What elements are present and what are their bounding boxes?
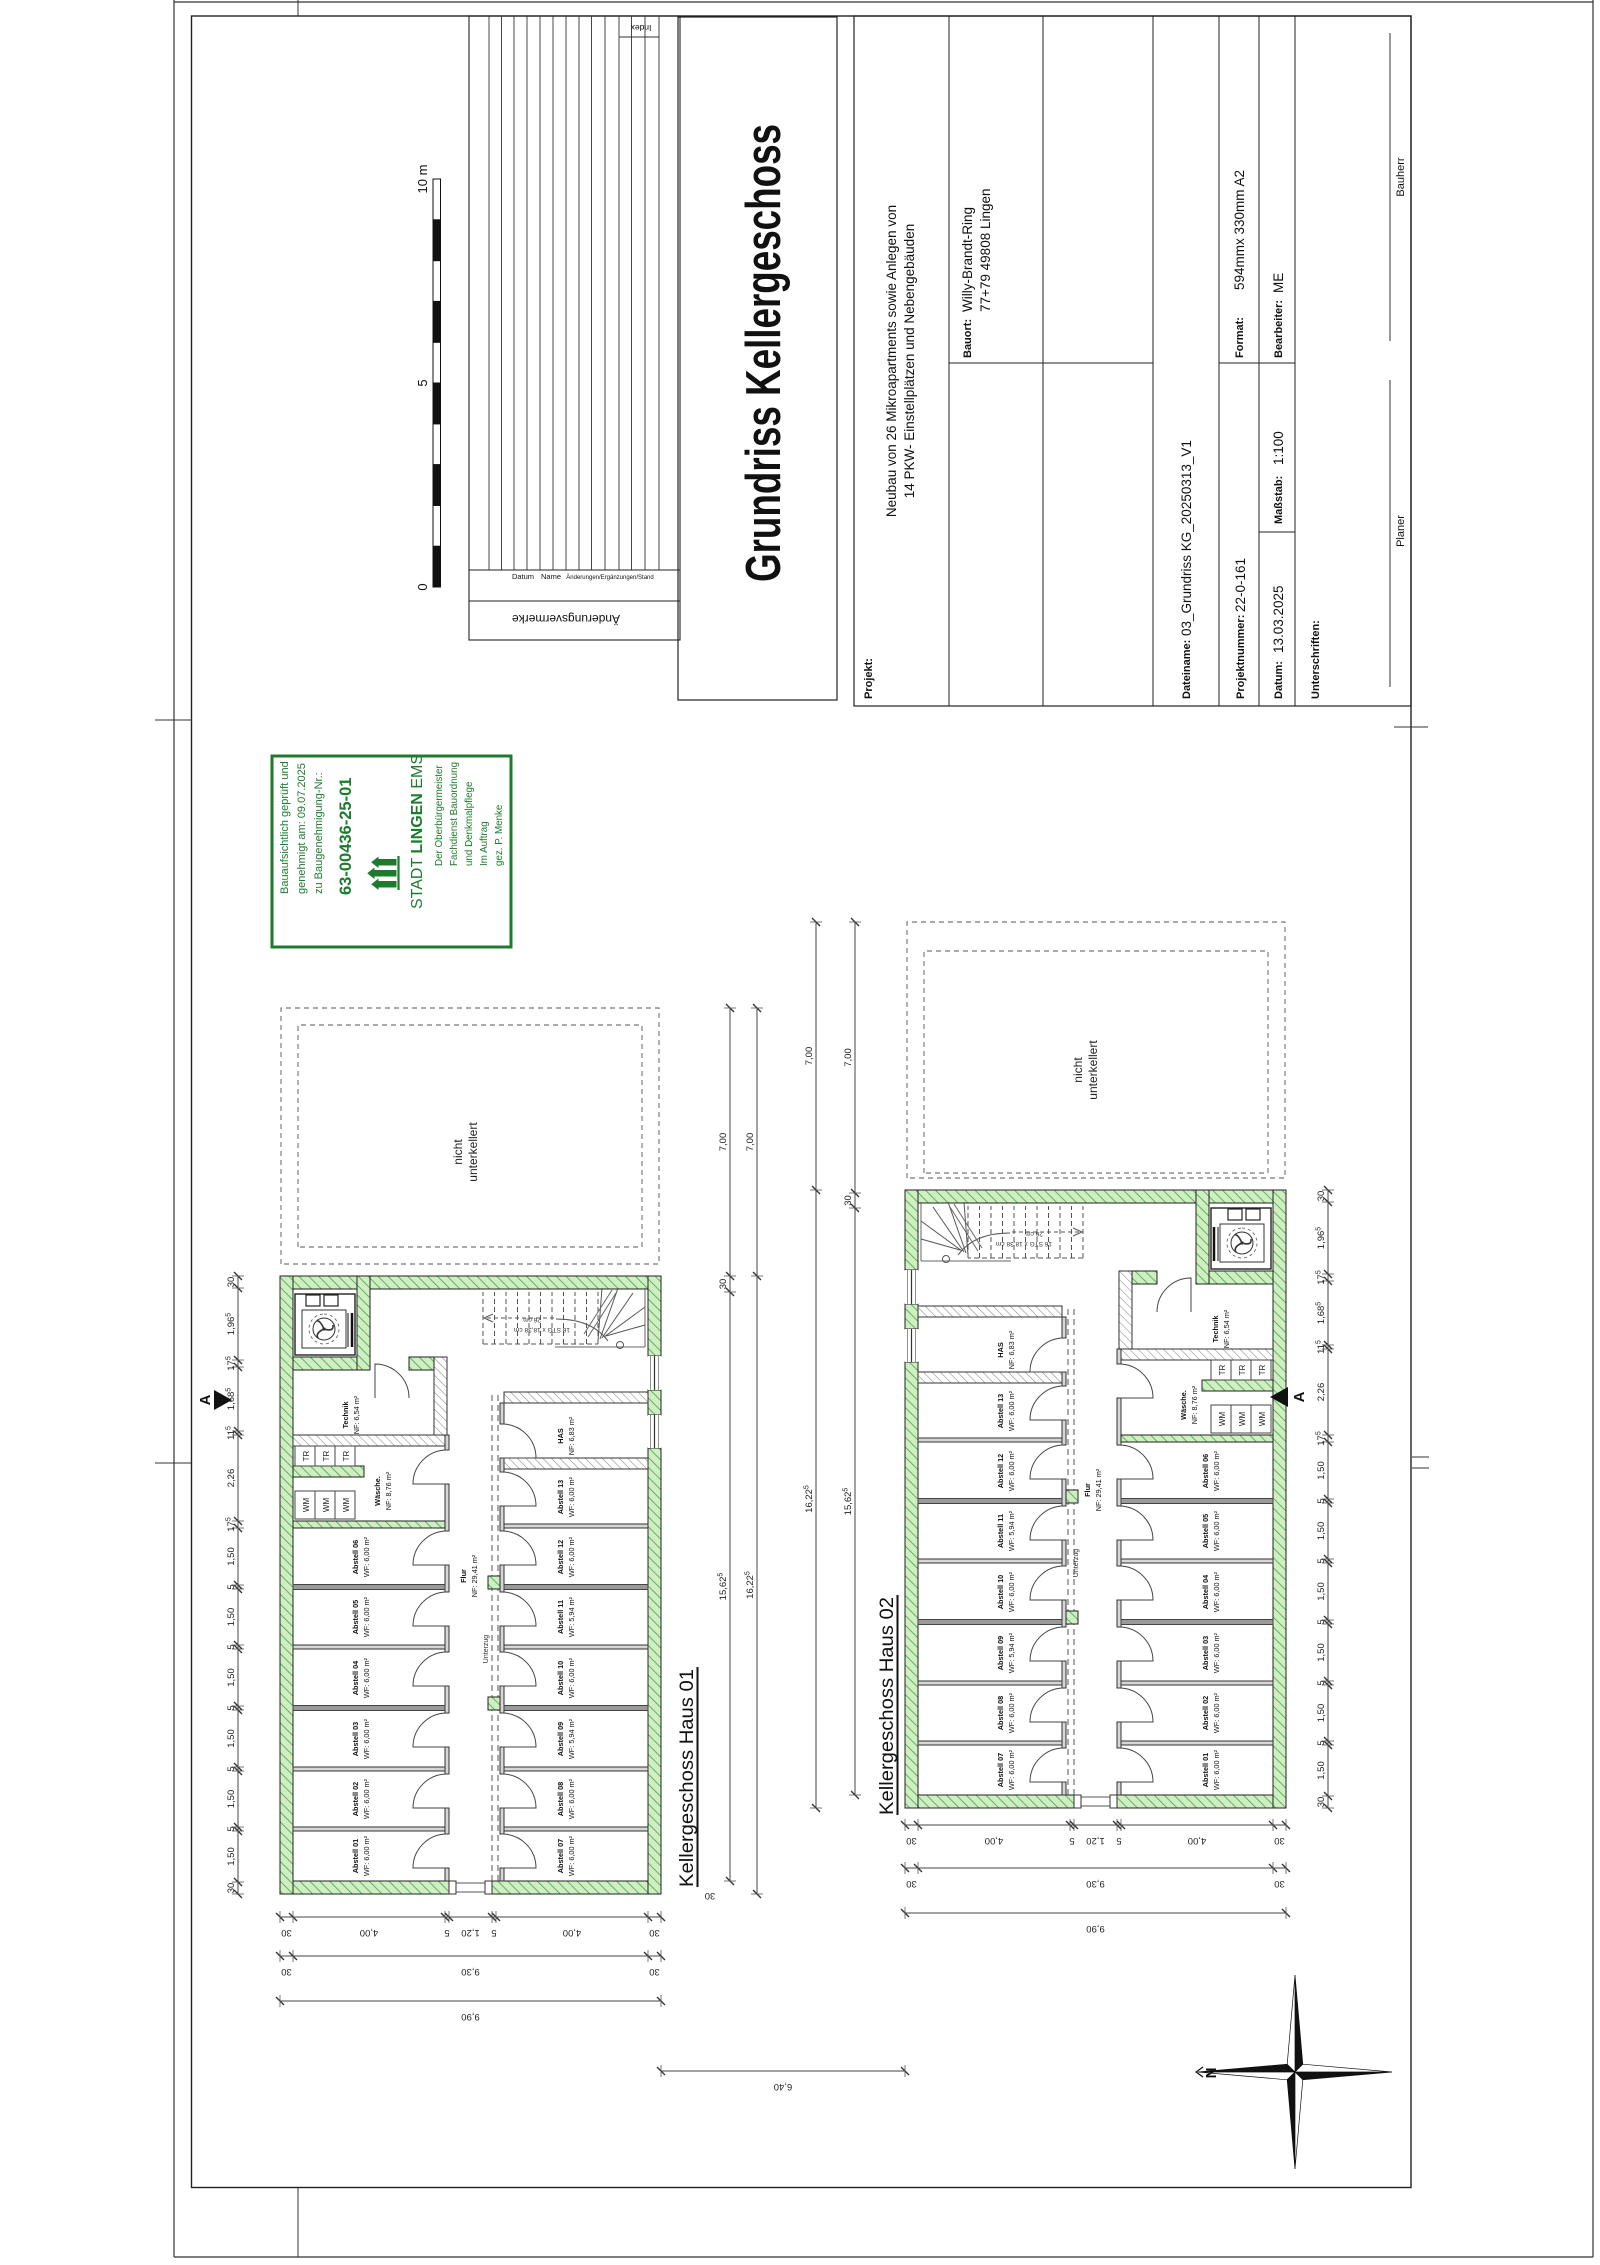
svg-text:13.03.2025: 13.03.2025 (1271, 585, 1286, 653)
svg-text:30: 30 (718, 1279, 729, 1290)
svg-text:WF: 6,00 m²: WF: 6,00 m² (1212, 1632, 1221, 1673)
svg-text:Abstell 07: Abstell 07 (556, 1839, 565, 1873)
svg-text:1,50: 1,50 (226, 1547, 237, 1566)
svg-text:16,225: 16,225 (804, 1485, 816, 1513)
svg-text:15,625: 15,625 (843, 1488, 855, 1516)
svg-text:Projekt:: Projekt: (863, 658, 875, 699)
svg-text:1,50: 1,50 (1316, 1461, 1327, 1480)
svg-text:5: 5 (1316, 1558, 1327, 1563)
svg-text:30: 30 (281, 1927, 292, 1938)
svg-text:WF: 6,00 m²: WF: 6,00 m² (362, 1657, 371, 1698)
svg-text:nicht: nicht (451, 1139, 465, 1165)
svg-text:16 STG x 18,38 cm: 16 STG x 18,38 cm (996, 1240, 1052, 1247)
svg-text:Datum:: Datum: (1273, 661, 1285, 699)
svg-text:Kellergeschoss Haus 02: Kellergeschoss Haus 02 (876, 1597, 898, 1815)
svg-text:TR: TR (1218, 1364, 1227, 1375)
svg-text:NF: 6,83 m²: NF: 6,83 m² (567, 1416, 576, 1455)
svg-text:HAS: HAS (556, 1428, 565, 1444)
svg-text:14 PKW- Einstellplätzen und Ne: 14 PKW- Einstellplätzen und Nebengebäude… (902, 224, 917, 498)
svg-text:Abstell 06: Abstell 06 (1201, 1454, 1210, 1488)
svg-text:TR: TR (1258, 1364, 1267, 1375)
svg-text:WF: 6,00 m²: WF: 6,00 m² (362, 1778, 371, 1819)
svg-text:zu Baugenehmigung-Nr.:: zu Baugenehmigung-Nr.: (313, 772, 325, 894)
svg-text:5: 5 (226, 1766, 237, 1771)
svg-text:4,00: 4,00 (360, 1927, 379, 1938)
svg-text:Flur: Flur (459, 1569, 468, 1583)
svg-text:4,00: 4,00 (1188, 1835, 1207, 1846)
svg-text:Abstell 09: Abstell 09 (556, 1722, 565, 1756)
svg-text:N: N (1203, 2068, 1220, 2079)
svg-text:30: 30 (226, 1277, 237, 1288)
svg-text:1,50: 1,50 (1316, 1582, 1327, 1601)
svg-text:Format:: Format: (1234, 317, 1246, 358)
svg-text:1,50: 1,50 (226, 1847, 237, 1866)
svg-text:15,625: 15,625 (718, 1573, 730, 1601)
svg-text:5: 5 (226, 1705, 237, 1710)
svg-text:und Denkmalpflege: und Denkmalpflege (464, 781, 475, 866)
svg-text:5: 5 (1069, 1835, 1074, 1846)
svg-text:Index: Index (630, 23, 652, 33)
svg-text:WF: 5,94 m²: WF: 5,94 m² (567, 1596, 576, 1637)
svg-text:1,685: 1,685 (1316, 1302, 1328, 1325)
svg-text:Unterschriften:: Unterschriften: (1310, 620, 1322, 699)
svg-text:03_Grundriss KG_20250313_V1: 03_Grundriss KG_20250313_V1 (1179, 440, 1194, 636)
svg-text:5: 5 (491, 1927, 496, 1938)
svg-text:1,20: 1,20 (461, 1927, 480, 1938)
svg-text:TR: TR (322, 1450, 331, 1461)
svg-text:WM: WM (342, 1498, 351, 1513)
svg-text:22-0-161: 22-0-161 (1233, 558, 1248, 612)
svg-text:1,50: 1,50 (226, 1608, 237, 1627)
svg-text:Abstell 05: Abstell 05 (1201, 1514, 1210, 1548)
svg-text:WM: WM (1238, 1412, 1247, 1427)
svg-text:30: 30 (649, 1966, 660, 1977)
svg-text:16,225: 16,225 (745, 1571, 757, 1599)
svg-text:Willy-Brandt-Ring: Willy-Brandt-Ring (960, 207, 975, 312)
svg-text:5: 5 (1316, 1498, 1327, 1503)
svg-text:26 cm: 26 cm (1025, 1230, 1043, 1237)
svg-text:Maßstab:: Maßstab: (1273, 476, 1285, 524)
svg-text:5: 5 (226, 1644, 237, 1649)
svg-text:Abstell 03: Abstell 03 (1201, 1636, 1210, 1670)
svg-text:10 m: 10 m (415, 165, 430, 194)
svg-text:Planer: Planer (1395, 515, 1407, 547)
svg-text:30: 30 (843, 1195, 854, 1206)
svg-text:Unterzug: Unterzug (483, 1635, 490, 1664)
svg-text:1,50: 1,50 (1316, 1704, 1327, 1723)
svg-text:WF: 6,00 m²: WF: 6,00 m² (1212, 1510, 1221, 1551)
svg-text:594mmx 330mm A2: 594mmx 330mm A2 (1232, 170, 1247, 290)
svg-text:30: 30 (649, 1927, 660, 1938)
svg-text:Abstell 10: Abstell 10 (556, 1661, 565, 1695)
svg-text:WF: 6,00 m²: WF: 6,00 m² (1212, 1749, 1221, 1790)
svg-text:unterkellert: unterkellert (1086, 1040, 1100, 1100)
svg-text:1:100: 1:100 (1271, 431, 1286, 465)
svg-text:Abstell 05: Abstell 05 (351, 1600, 360, 1634)
svg-text:Technik: Technik (341, 1401, 350, 1429)
svg-text:Abstell 08: Abstell 08 (556, 1782, 565, 1816)
svg-text:Abstell 02: Abstell 02 (351, 1782, 360, 1816)
svg-text:Datum: Datum (512, 572, 534, 581)
svg-text:Abstell 04: Abstell 04 (351, 1660, 360, 1695)
svg-text:1,50: 1,50 (1316, 1643, 1327, 1662)
svg-text:STADT LINGEN EMS: STADT LINGEN EMS (409, 754, 426, 909)
svg-text:30: 30 (1274, 1878, 1285, 1889)
svg-text:30: 30 (226, 1883, 237, 1894)
svg-text:A: A (1291, 1391, 1308, 1402)
svg-text:Abstell 09: Abstell 09 (996, 1636, 1005, 1670)
svg-text:WF: 6,00 m²: WF: 6,00 m² (567, 1536, 576, 1577)
svg-text:NF: 6,54 m²: NF: 6,54 m² (1222, 1309, 1231, 1348)
svg-text:1,965: 1,965 (1316, 1227, 1328, 1250)
svg-text:30: 30 (906, 1835, 917, 1846)
svg-text:7,00: 7,00 (718, 1133, 729, 1152)
svg-text:1,50: 1,50 (226, 1668, 237, 1687)
svg-text:1,50: 1,50 (226, 1790, 237, 1809)
svg-text:WF: 6,00 m²: WF: 6,00 m² (1007, 1571, 1016, 1612)
svg-text:1,50: 1,50 (226, 1729, 237, 1748)
svg-text:WF: 6,00 m²: WF: 6,00 m² (567, 1835, 576, 1876)
svg-text:Dateiname:: Dateiname: (1181, 640, 1193, 699)
svg-text:WF: 5,94 m²: WF: 5,94 m² (567, 1718, 576, 1759)
svg-text:30: 30 (705, 1890, 716, 1901)
svg-text:9,30: 9,30 (1086, 1878, 1105, 1889)
svg-text:NF: 8,76 m²: NF: 8,76 m² (384, 1471, 393, 1510)
svg-text:30: 30 (1274, 1835, 1285, 1846)
svg-text:Abstell 02: Abstell 02 (1201, 1696, 1210, 1730)
svg-text:Flur: Flur (1083, 1483, 1092, 1497)
svg-text:7,00: 7,00 (804, 1047, 815, 1066)
svg-text:Bauort:: Bauort: (962, 319, 974, 358)
svg-text:WM: WM (302, 1498, 311, 1513)
svg-text:6,40: 6,40 (774, 2081, 793, 2092)
svg-text:63-00436-25-01: 63-00436-25-01 (337, 778, 355, 895)
svg-text:5: 5 (1316, 1619, 1327, 1624)
svg-text:WF: 6,00 m²: WF: 6,00 m² (567, 1778, 576, 1819)
svg-text:5: 5 (1316, 1740, 1327, 1745)
svg-text:WF: 6,00 m²: WF: 6,00 m² (362, 1536, 371, 1577)
svg-text:WF: 6,00 m²: WF: 6,00 m² (1007, 1450, 1016, 1491)
svg-text:1,50: 1,50 (1316, 1761, 1327, 1780)
svg-text:2,26: 2,26 (1316, 1383, 1327, 1402)
svg-text:5: 5 (1116, 1835, 1121, 1846)
svg-text:WM: WM (1258, 1412, 1267, 1427)
svg-text:0: 0 (415, 583, 430, 590)
svg-text:2,26: 2,26 (226, 1469, 237, 1488)
svg-text:WM: WM (322, 1498, 331, 1513)
svg-text:NF: 6,83 m²: NF: 6,83 m² (1007, 1330, 1016, 1369)
svg-text:WF: 5,94 m²: WF: 5,94 m² (1007, 1632, 1016, 1673)
svg-text:NF: 6,54 m²: NF: 6,54 m² (352, 1395, 361, 1434)
svg-text:WM: WM (1218, 1412, 1227, 1427)
svg-text:1,965: 1,965 (226, 1313, 238, 1336)
svg-text:Abstell 08: Abstell 08 (996, 1696, 1005, 1730)
svg-text:Abstell 12: Abstell 12 (556, 1540, 565, 1574)
svg-text:gez. P. Menke: gez. P. Menke (494, 804, 505, 866)
svg-text:Abstell 13: Abstell 13 (556, 1480, 565, 1514)
svg-text:Abstell 06: Abstell 06 (351, 1540, 360, 1574)
svg-text:1,685: 1,685 (226, 1388, 238, 1411)
svg-text:WF: 6,00 m²: WF: 6,00 m² (1007, 1749, 1016, 1790)
svg-text:genehmigt am: 09.07.2025: genehmigt am: 09.07.2025 (296, 763, 308, 894)
svg-text:nicht: nicht (1071, 1057, 1085, 1083)
svg-text:A: A (197, 1394, 214, 1405)
svg-text:30: 30 (1316, 1191, 1327, 1202)
svg-text:WF: 6,00 m²: WF: 6,00 m² (1212, 1692, 1221, 1733)
svg-text:Unterzug: Unterzug (1073, 1549, 1080, 1578)
svg-text:7,00: 7,00 (745, 1133, 756, 1152)
svg-text:5: 5 (226, 1584, 237, 1589)
svg-text:Abstell 01: Abstell 01 (351, 1839, 360, 1873)
svg-text:Bauaufsichtlich geprüft und: Bauaufsichtlich geprüft und (279, 761, 291, 894)
svg-text:30: 30 (1316, 1797, 1327, 1808)
svg-text:Abstell 13: Abstell 13 (996, 1394, 1005, 1428)
svg-text:WF: 6,00 m²: WF: 6,00 m² (1007, 1692, 1016, 1733)
svg-text:Abstell 01: Abstell 01 (1201, 1753, 1210, 1787)
svg-text:77+79 49808 Lingen: 77+79 49808 Lingen (978, 189, 993, 313)
svg-text:4,00: 4,00 (985, 1835, 1004, 1846)
svg-text:5: 5 (415, 379, 430, 386)
svg-text:9,30: 9,30 (461, 1966, 480, 1977)
svg-text:WF: 6,00 m²: WF: 6,00 m² (362, 1596, 371, 1637)
svg-text:Abstell 11: Abstell 11 (556, 1600, 565, 1634)
svg-text:Wäsche.: Wäsche. (1179, 1390, 1188, 1420)
svg-text:Der Oberbürgermeister: Der Oberbürgermeister (434, 765, 445, 866)
svg-text:7,00: 7,00 (843, 1048, 854, 1067)
svg-text:WF: 6,00 m²: WF: 6,00 m² (362, 1718, 371, 1759)
svg-text:Änderungsvermerke: Änderungsvermerke (512, 612, 620, 626)
svg-text:Abstell 10: Abstell 10 (996, 1575, 1005, 1609)
svg-text:Bauherr: Bauherr (1395, 157, 1407, 196)
svg-text:WF: 6,00 m²: WF: 6,00 m² (362, 1835, 371, 1876)
svg-text:16 STG x 18,38 cm: 16 STG x 18,38 cm (514, 1326, 570, 1333)
svg-text:4,00: 4,00 (563, 1927, 582, 1938)
svg-text:26 cm: 26 cm (523, 1316, 541, 1323)
svg-text:1,20: 1,20 (1086, 1835, 1105, 1846)
svg-text:Im Auftrag: Im Auftrag (479, 821, 490, 866)
svg-text:WF: 6,00 m²: WF: 6,00 m² (1212, 1571, 1221, 1612)
svg-text:30: 30 (281, 1966, 292, 1977)
svg-text:Fachdienst Bauordnung: Fachdienst Bauordnung (449, 762, 460, 866)
svg-text:Abstell 07: Abstell 07 (996, 1753, 1005, 1787)
svg-text:NF: 29,41 m²: NF: 29,41 m² (1094, 1468, 1103, 1511)
svg-text:TR: TR (302, 1450, 311, 1461)
svg-text:Kellergeschoss Haus 01: Kellergeschoss Haus 01 (676, 1669, 698, 1887)
svg-text:WF: 6,00 m²: WF: 6,00 m² (567, 1476, 576, 1517)
svg-text:Abstell 11: Abstell 11 (996, 1514, 1005, 1548)
svg-text:NF: 8,76 m²: NF: 8,76 m² (1190, 1385, 1199, 1424)
svg-text:Wäsche.: Wäsche. (373, 1476, 382, 1506)
svg-text:NF: 29,41 m²: NF: 29,41 m² (470, 1554, 479, 1597)
svg-text:9,90: 9,90 (461, 2011, 480, 2022)
svg-text:HAS: HAS (996, 1342, 1005, 1358)
svg-text:WF: 5,94 m²: WF: 5,94 m² (1007, 1510, 1016, 1551)
svg-text:ME: ME (1271, 273, 1286, 293)
svg-text:TR: TR (342, 1450, 351, 1461)
svg-text:Projektnummer:: Projektnummer: (1235, 615, 1247, 699)
svg-text:5: 5 (444, 1927, 449, 1938)
svg-text:Grundriss Kellergeschoss: Grundriss Kellergeschoss (737, 124, 791, 582)
svg-text:Abstell 12: Abstell 12 (996, 1454, 1005, 1488)
svg-text:5: 5 (226, 1826, 237, 1831)
svg-text:WF: 6,00 m²: WF: 6,00 m² (1007, 1390, 1016, 1431)
svg-text:Änderungen/Ergänzungen/Stand: Änderungen/Ergänzungen/Stand (566, 574, 653, 581)
svg-text:Abstell 03: Abstell 03 (351, 1722, 360, 1756)
svg-text:Name: Name (541, 572, 561, 581)
svg-text:Abstell 04: Abstell 04 (1201, 1574, 1210, 1609)
svg-text:TR: TR (1238, 1364, 1247, 1375)
svg-text:30: 30 (906, 1878, 917, 1889)
svg-text:WF: 6,00 m²: WF: 6,00 m² (567, 1657, 576, 1698)
svg-text:unterkellert: unterkellert (466, 1122, 480, 1182)
svg-text:Neubau von 26 Mikroapartments: Neubau von 26 Mikroapartments sowie Anle… (884, 205, 899, 517)
svg-text:9,90: 9,90 (1086, 1923, 1105, 1934)
svg-text:Bearbeiter:: Bearbeiter: (1273, 300, 1285, 358)
svg-text:5: 5 (1316, 1680, 1327, 1685)
svg-text:WF: 6,00 m²: WF: 6,00 m² (1212, 1450, 1221, 1491)
svg-text:Technik: Technik (1211, 1315, 1220, 1343)
svg-text:1,50: 1,50 (1316, 1522, 1327, 1541)
